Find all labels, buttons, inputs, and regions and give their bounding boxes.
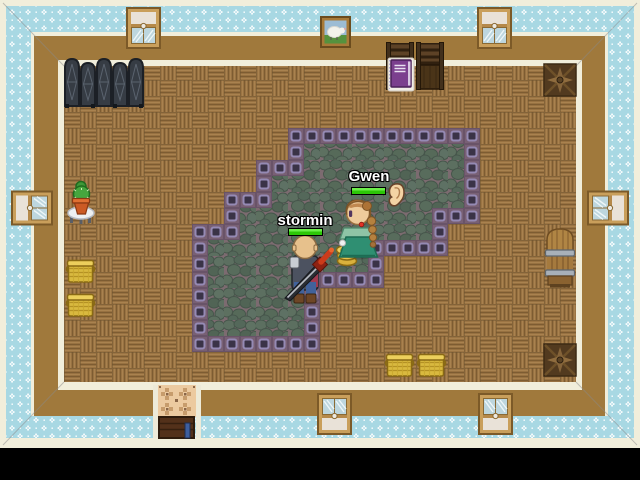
- basket: [67, 295, 95, 317]
- hp-bar-stormin: [288, 228, 323, 236]
- player-name-label-gwen: Gwen: [349, 169, 390, 185]
- void-bottom: [0, 448, 640, 480]
- door-rug: [158, 385, 196, 417]
- sheep-painting: [321, 17, 350, 47]
- folding-screen: [65, 59, 143, 108]
- doorway[interactable]: [153, 385, 201, 438]
- barrel: [546, 229, 575, 288]
- floor-medallion-bottom: [544, 344, 576, 376]
- hp-fill-gwen: [352, 188, 385, 194]
- door-jamb-left: [153, 385, 158, 438]
- basket: [418, 355, 446, 377]
- chair-plain: [417, 43, 444, 90]
- gwen-earring: [359, 222, 364, 227]
- door[interactable]: [159, 417, 194, 438]
- player-name-label-stormin: stormin: [277, 213, 332, 229]
- stormin-head: [294, 236, 317, 259]
- window-left-wall: [12, 192, 52, 225]
- hp-bar-gwen: [351, 187, 386, 195]
- window-bottom-right: [479, 394, 512, 434]
- hp-fill-stormin: [289, 229, 322, 235]
- window-bottom-center: [318, 394, 351, 434]
- door-figure: [185, 423, 190, 438]
- floor-medallion-top: [544, 64, 576, 96]
- basket: [386, 355, 414, 377]
- window-top-left: [127, 8, 160, 48]
- window-top-right: [478, 8, 511, 48]
- basket: [67, 261, 95, 283]
- game-viewport: stormin Gwen: [0, 0, 640, 480]
- purple-book[interactable]: [391, 60, 411, 87]
- gwen-eye: [349, 211, 352, 218]
- window-right-wall: [588, 192, 628, 225]
- door-jamb-right: [196, 385, 201, 438]
